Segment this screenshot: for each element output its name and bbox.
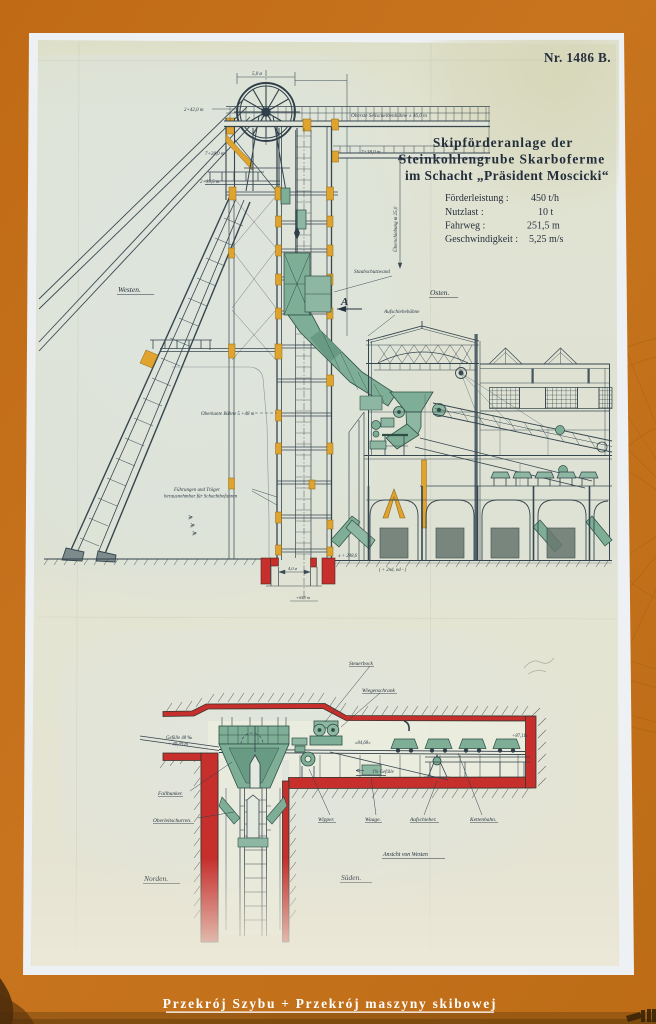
svg-text:Überschiebung m 25,0: Überschiebung m 25,0 — [393, 206, 399, 252]
svg-text:Nutzlast :: Nutzlast : — [445, 207, 484, 218]
svg-text:Förderleistung :: Förderleistung : — [445, 193, 509, 204]
svg-text:5,0 ø: 5,0 ø — [252, 72, 263, 77]
svg-text:Oberste Seilscheibenbühne ± 4: Oberste Seilscheibenbühne ± 46,0 m — [351, 112, 427, 119]
svg-text:Aufschiebebühne: Aufschiebebühne — [383, 308, 420, 315]
svg-text:Fahrweg :: Fahrweg : — [445, 221, 485, 232]
svg-text:Kettenbahn.: Kettenbahn. — [469, 817, 496, 823]
svg-text:Wiegenschrank: Wiegenschrank — [362, 688, 396, 694]
svg-text:7+28,0 m: 7+28,0 m — [205, 152, 225, 157]
svg-text:1% Gefälle: 1% Gefälle — [372, 770, 395, 775]
svg-text:2+42,0 m: 2+42,0 m — [184, 108, 204, 113]
svg-text:Oberleitschurren.: Oberleitschurren. — [153, 818, 191, 824]
svg-text:≽: ≽ — [188, 515, 193, 521]
svg-text:Geschwindigkeit :: Geschwindigkeit : — [445, 234, 518, 245]
svg-text:( + 2nd, od - ): ( + 2nd, od - ) — [379, 568, 407, 573]
svg-text:Waage.: Waage. — [365, 817, 381, 823]
svg-text:Steuerbock: Steuerbock — [349, 661, 374, 667]
svg-text:im Schacht „Präsident Moscicki: im Schacht „Präsident Moscicki“ — [405, 168, 609, 183]
svg-text:Gefälle 48 ‰: Gefälle 48 ‰ — [166, 736, 192, 741]
svg-text:+ 49,49 m: + 49,49 m — [168, 743, 188, 748]
svg-text:+87,11«: +87,11« — [512, 734, 529, 739]
svg-text:A: A — [340, 296, 348, 308]
svg-text:Fallbunker.: Fallbunker. — [157, 791, 183, 797]
svg-text:7+38,0 m: 7+38,0 m — [361, 151, 381, 156]
svg-text:2+15,5 m: 2+15,5 m — [200, 180, 220, 185]
svg-text:Staubschutzwand: Staubschutzwand — [354, 269, 390, 275]
svg-text:Osten.: Osten. — [430, 288, 449, 297]
svg-text:Führungen und Träger: Führungen und Träger — [173, 488, 220, 493]
svg-text:Przekrój Szybu + Przekrój masz: Przekrój Szybu + Przekrój maszyny skibow… — [163, 996, 497, 1011]
svg-text:Ansicht von Westen: Ansicht von Westen — [382, 852, 428, 858]
svg-text:herausnehmbar für Schachtbefah: herausnehmbar für Schachtbefahren — [164, 495, 238, 500]
svg-text:Steinkohlengrube Skarboferme: Steinkohlengrube Skarboferme — [399, 152, 605, 167]
svg-text:≽: ≽ — [192, 531, 197, 537]
svg-text:450 t/h: 450 t/h — [531, 193, 559, 204]
svg-text:Skipförderanlage der: Skipförderanlage der — [433, 135, 573, 150]
svg-text:+048 m: +048 m — [296, 595, 311, 600]
svg-text:± + 288,6: ± + 288,6 — [338, 554, 358, 559]
svg-text:5,25 m/s: 5,25 m/s — [529, 234, 564, 245]
svg-text:Nr. 1486 B.: Nr. 1486 B. — [544, 50, 611, 65]
svg-text:Oberkante Bühne 5 +48 m: Oberkante Bühne 5 +48 m — [201, 412, 255, 417]
svg-text:251,5 m: 251,5 m — [527, 221, 560, 232]
svg-text:«84,68«: «84,68« — [355, 741, 371, 746]
svg-text:Aufschieber.: Aufschieber. — [409, 816, 437, 823]
svg-text:≽: ≽ — [190, 523, 195, 529]
svg-text:Westen.: Westen. — [118, 285, 141, 294]
svg-text:Wipper.: Wipper. — [318, 817, 334, 823]
svg-text:10 t: 10 t — [538, 207, 554, 218]
